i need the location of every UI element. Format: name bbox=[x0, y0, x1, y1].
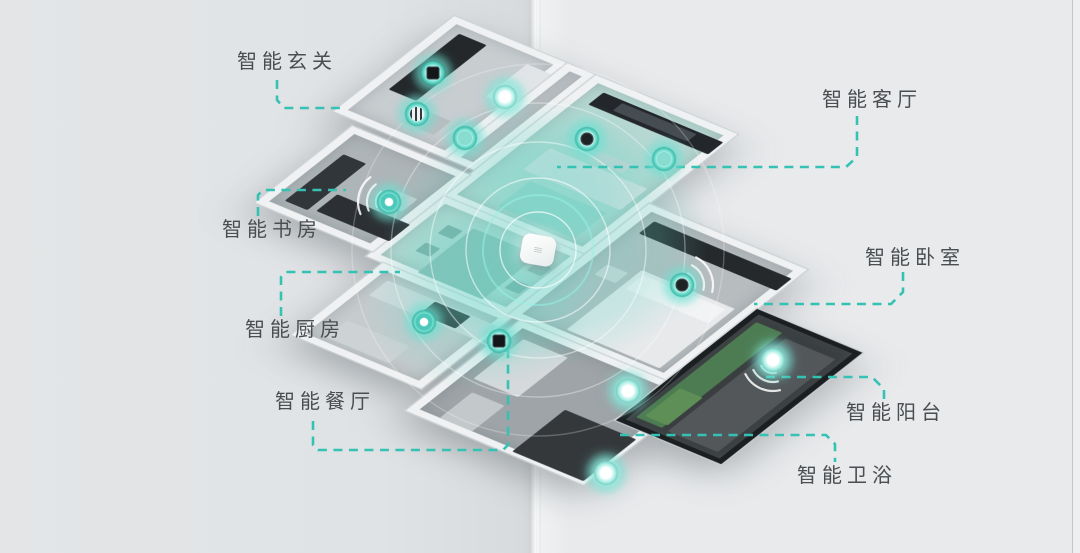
furniture-block bbox=[415, 242, 440, 256]
page-edge-strip bbox=[1073, 0, 1080, 553]
device-icon bbox=[581, 133, 594, 146]
device-icon bbox=[622, 385, 634, 397]
device-icon bbox=[499, 91, 511, 103]
smart-hub-gateway bbox=[519, 232, 558, 267]
device-entry-controller bbox=[394, 91, 440, 137]
room-label-bathroom: 智能卫浴 bbox=[797, 466, 897, 486]
device-dining-wall-panel bbox=[476, 318, 522, 364]
furniture-block bbox=[438, 225, 463, 239]
device-icon bbox=[410, 107, 424, 121]
smart-home-infographic: 智能玄关智能书房智能厨房智能餐厅智能客厅智能卧室智能阳台智能卫浴 bbox=[0, 0, 1080, 553]
device-balcony-sensor bbox=[750, 337, 796, 383]
device-icon bbox=[427, 67, 440, 80]
device-bathroom-sensor-1 bbox=[605, 368, 651, 414]
room-label-dining: 智能餐厅 bbox=[275, 392, 375, 412]
device-entry-wall-panel bbox=[410, 50, 456, 96]
device-entry-ceiling-light bbox=[482, 74, 528, 120]
room-label-balcony: 智能阳台 bbox=[846, 403, 946, 423]
device-icon bbox=[458, 131, 472, 145]
furniture-block bbox=[440, 392, 505, 431]
device-kitchen-sensor bbox=[401, 299, 447, 345]
room-label-living: 智能客厅 bbox=[822, 90, 922, 110]
device-icon bbox=[657, 152, 671, 166]
device-hallway-sensor bbox=[442, 115, 488, 161]
device-bathroom-sensor-2 bbox=[583, 450, 629, 496]
room-label-entry: 智能玄关 bbox=[237, 52, 337, 72]
device-study-speaker bbox=[366, 179, 412, 225]
device-icon bbox=[767, 354, 779, 366]
room-label-study: 智能书房 bbox=[222, 220, 322, 240]
device-icon bbox=[381, 194, 398, 211]
device-icon bbox=[416, 314, 433, 331]
room-label-kitchen: 智能厨房 bbox=[245, 320, 345, 340]
device-icon bbox=[600, 467, 612, 479]
room-label-bedroom: 智能卧室 bbox=[865, 248, 965, 268]
furniture-block bbox=[504, 280, 529, 294]
device-icon bbox=[676, 279, 689, 292]
device-bedroom-speaker bbox=[659, 262, 705, 308]
device-icon bbox=[493, 335, 506, 348]
furniture-block bbox=[594, 264, 628, 283]
device-living-wall-device bbox=[641, 136, 687, 182]
device-living-tv-device bbox=[564, 116, 610, 162]
